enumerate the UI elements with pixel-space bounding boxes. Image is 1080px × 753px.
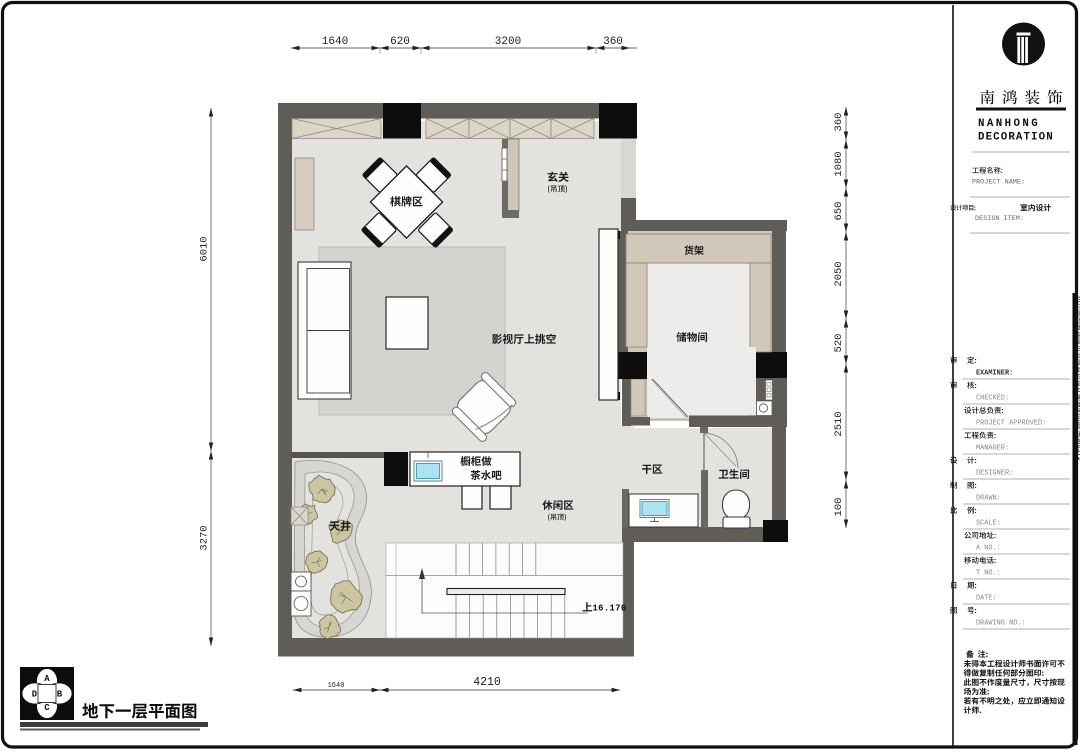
svg-text:B: B	[57, 690, 63, 700]
svg-text:16.170: 16.170	[593, 604, 627, 614]
svg-text:2050: 2050	[833, 261, 845, 286]
svg-text:DESIGN ITEM:: DESIGN ITEM:	[975, 215, 1024, 223]
svg-text:SCALE:: SCALE:	[976, 520, 1001, 528]
svg-text:PROJECT APPROVED:: PROJECT APPROVED:	[976, 420, 1046, 428]
svg-text:620: 620	[390, 36, 410, 48]
svg-text:T NO.:: T NO.:	[976, 570, 1001, 578]
svg-text:6010: 6010	[199, 236, 211, 261]
svg-text:EXAMINER:: EXAMINER:	[976, 370, 1013, 378]
svg-text:D: D	[32, 690, 38, 700]
svg-text:A: A	[44, 674, 50, 684]
svg-text:520: 520	[833, 334, 845, 353]
svg-text:A NO.:: A NO.:	[976, 545, 1001, 553]
svg-text:360: 360	[603, 36, 623, 48]
svg-text:2510: 2510	[833, 411, 845, 436]
svg-text:DRAWN:: DRAWN:	[976, 495, 1001, 503]
svg-text:1640: 1640	[322, 36, 348, 48]
svg-text:C: C	[44, 703, 50, 713]
svg-text:650: 650	[833, 202, 845, 221]
svg-text:DRAWING NO.:: DRAWING NO.:	[976, 620, 1026, 628]
svg-text:4210: 4210	[473, 676, 501, 689]
svg-text:1080: 1080	[833, 151, 845, 176]
svg-text:360: 360	[833, 113, 845, 132]
svg-text:DATE:: DATE:	[976, 595, 997, 603]
svg-text:DESIGNER:: DESIGNER:	[976, 470, 1013, 478]
svg-text:3200: 3200	[495, 36, 521, 48]
svg-text:3270: 3270	[199, 525, 211, 550]
svg-text:NANHONG: NANHONG	[978, 118, 1040, 130]
svg-text:MANAGER:: MANAGER:	[976, 445, 1009, 453]
svg-text:100: 100	[833, 498, 845, 517]
svg-text:DECORATION: DECORATION	[978, 132, 1054, 144]
svg-text:PROJECT NAME:: PROJECT NAME:	[972, 179, 1025, 187]
svg-text:1640: 1640	[328, 682, 345, 690]
svg-text:CHECKED:: CHECKED:	[976, 395, 1009, 403]
